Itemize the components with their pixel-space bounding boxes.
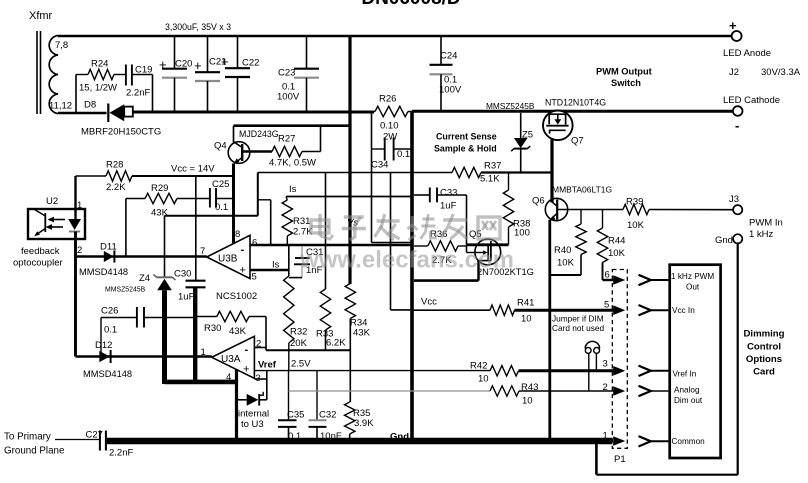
svg-text:NCS1002: NCS1002 <box>216 291 257 302</box>
svg-text:+: + <box>243 364 249 376</box>
svg-text:R28: R28 <box>106 160 123 171</box>
svg-text:C27: C27 <box>86 430 103 441</box>
svg-text:7,8: 7,8 <box>55 40 68 51</box>
svg-text:100V: 100V <box>439 85 462 96</box>
svg-text:R39: R39 <box>626 197 643 208</box>
svg-text:43K: 43K <box>353 328 371 339</box>
svg-text:C35: C35 <box>287 410 304 421</box>
svg-text:C20: C20 <box>175 59 192 70</box>
svg-text:100: 100 <box>514 228 530 239</box>
svg-text:LED Cathode: LED Cathode <box>723 95 780 106</box>
svg-text:Switch: Switch <box>611 78 641 88</box>
svg-text:MMSD4148: MMSD4148 <box>79 267 128 277</box>
svg-text:R24: R24 <box>91 59 108 70</box>
svg-text:MMSZ5245B: MMSZ5245B <box>486 101 535 111</box>
svg-text:internal: internal <box>238 409 269 420</box>
svg-text:10: 10 <box>522 396 533 407</box>
svg-text:J2: J2 <box>729 67 739 78</box>
svg-text:Vcc = 14V: Vcc = 14V <box>171 164 215 175</box>
svg-text:43K: 43K <box>151 208 169 219</box>
svg-text:R29: R29 <box>151 183 168 194</box>
svg-text:LED Anode: LED Anode <box>723 48 771 59</box>
svg-text:U2: U2 <box>46 196 58 207</box>
svg-text:Q6: Q6 <box>532 196 545 207</box>
svg-text:DN06008/D: DN06008/D <box>361 0 460 9</box>
svg-text:15, 1/2W: 15, 1/2W <box>79 83 117 94</box>
svg-text:Jumper if DIM: Jumper if DIM <box>552 314 604 324</box>
svg-text:Ground Plane: Ground Plane <box>4 446 65 457</box>
svg-text:1 kHz: 1 kHz <box>749 229 774 240</box>
svg-text:C25: C25 <box>212 179 229 190</box>
svg-text:6: 6 <box>605 270 610 281</box>
svg-text:U3B: U3B <box>218 254 238 265</box>
svg-text:Vref In: Vref In <box>673 370 697 379</box>
svg-text:-: - <box>241 244 245 256</box>
svg-text:2: 2 <box>603 382 608 393</box>
svg-text:10K: 10K <box>627 220 645 231</box>
svg-text:optocoupler: optocoupler <box>13 258 63 269</box>
svg-text:MBRF20H150CTG: MBRF20H150CTG <box>81 127 161 138</box>
svg-text:C26: C26 <box>101 306 118 317</box>
svg-text:PWM In: PWM In <box>749 218 783 229</box>
svg-text:Q7: Q7 <box>571 136 584 147</box>
svg-text:Card not used: Card not used <box>552 323 605 333</box>
svg-text:R30: R30 <box>204 323 221 334</box>
svg-text:C19: C19 <box>135 65 152 76</box>
svg-text:+: + <box>221 54 229 69</box>
svg-text:10: 10 <box>478 374 489 385</box>
svg-text:8: 8 <box>235 229 240 240</box>
svg-text:100V: 100V <box>277 92 300 103</box>
svg-text:D12: D12 <box>95 340 112 351</box>
svg-text:3: 3 <box>603 359 608 370</box>
svg-text:Current Sense: Current Sense <box>436 132 497 142</box>
svg-text:Card: Card <box>753 367 775 378</box>
svg-text:20K: 20K <box>290 338 308 349</box>
svg-text:1 kHz PWM: 1 kHz PWM <box>671 272 714 281</box>
svg-text:Dimming: Dimming <box>743 329 784 340</box>
svg-text:Analog: Analog <box>674 386 700 395</box>
svg-text:5.1K: 5.1K <box>480 174 500 185</box>
svg-text:1uF: 1uF <box>178 292 195 303</box>
svg-text:+: + <box>159 57 167 72</box>
svg-text:R32: R32 <box>290 327 307 338</box>
svg-text:+: + <box>729 18 737 33</box>
svg-text:43K: 43K <box>229 326 247 337</box>
svg-text:PWM Output: PWM Output <box>596 67 652 77</box>
svg-text:Common: Common <box>672 437 706 446</box>
svg-text:2: 2 <box>77 245 82 256</box>
svg-text:R40: R40 <box>554 245 571 256</box>
svg-text:MMSZ5245B: MMSZ5245B <box>105 287 146 294</box>
svg-text:2.2nF: 2.2nF <box>109 448 133 459</box>
svg-text:Options: Options <box>746 354 782 365</box>
svg-text:R43: R43 <box>521 382 538 393</box>
svg-text:C32: C32 <box>319 410 336 421</box>
svg-text:Vref: Vref <box>258 360 277 371</box>
svg-text:R31: R31 <box>293 216 310 227</box>
svg-text:Dim out: Dim out <box>674 396 703 405</box>
svg-text:R41: R41 <box>517 298 534 309</box>
svg-text:Vcc In: Vcc In <box>672 306 695 315</box>
svg-text:5: 5 <box>604 300 609 311</box>
svg-text:6.2K: 6.2K <box>326 337 346 348</box>
svg-text:0.1: 0.1 <box>397 149 410 160</box>
svg-text:Control: Control <box>747 342 781 353</box>
svg-text:0.1: 0.1 <box>215 202 228 213</box>
svg-text:Out: Out <box>686 283 700 292</box>
svg-text:-: - <box>245 344 249 356</box>
svg-text:C30: C30 <box>174 268 191 279</box>
svg-text:2.2nF: 2.2nF <box>126 88 150 99</box>
svg-text:MJD243G: MJD243G <box>239 129 279 139</box>
svg-text:Sample & Hold: Sample & Hold <box>434 144 497 154</box>
svg-text:Z5: Z5 <box>522 130 533 141</box>
svg-text:Q4: Q4 <box>214 141 227 152</box>
svg-text:C23: C23 <box>278 68 295 79</box>
svg-text:3,300uF, 35V x 3: 3,300uF, 35V x 3 <box>165 22 231 32</box>
svg-text:4: 4 <box>226 372 231 383</box>
svg-text:NTD12N10T4G: NTD12N10T4G <box>545 98 606 108</box>
svg-text:R42: R42 <box>470 361 487 372</box>
svg-text:6: 6 <box>252 238 257 249</box>
svg-text:1: 1 <box>77 200 82 211</box>
svg-text:MMBTA06LT1G: MMBTA06LT1G <box>552 185 612 195</box>
svg-text:D11: D11 <box>100 242 117 253</box>
svg-text:+: + <box>240 265 246 277</box>
svg-text:U3A: U3A <box>221 354 241 365</box>
svg-text:11,12: 11,12 <box>49 101 72 112</box>
svg-text:C22: C22 <box>242 58 259 69</box>
svg-text:R44: R44 <box>608 236 625 247</box>
svg-text:3.9K: 3.9K <box>354 418 374 429</box>
svg-text:2.5V: 2.5V <box>291 359 311 370</box>
svg-text:Gnd: Gnd <box>715 235 733 246</box>
svg-text:+: + <box>194 58 202 73</box>
svg-text:Z4: Z4 <box>139 273 150 284</box>
svg-text:To Primary: To Primary <box>4 432 51 443</box>
svg-text:C33: C33 <box>440 188 457 199</box>
svg-text:5: 5 <box>252 272 257 283</box>
svg-text:www.elecfans.com: www.elecfans.com <box>299 247 514 274</box>
svg-text:Gnd: Gnd <box>390 432 409 443</box>
svg-text:Vcc: Vcc <box>421 297 437 308</box>
svg-text:30V/3.3A: 30V/3.3A <box>761 67 801 78</box>
svg-text:0.1: 0.1 <box>104 325 117 336</box>
svg-text:10: 10 <box>521 314 532 325</box>
svg-text:R27: R27 <box>278 134 295 145</box>
svg-text:feedback: feedback <box>21 246 60 257</box>
svg-text:0.10: 0.10 <box>380 121 399 132</box>
svg-text:1uF: 1uF <box>440 201 457 212</box>
svg-text:R37: R37 <box>484 161 501 172</box>
svg-text:P1: P1 <box>614 454 626 465</box>
svg-text:C34: C34 <box>371 160 388 171</box>
svg-text:to U3: to U3 <box>241 419 264 430</box>
svg-text:10K: 10K <box>608 248 626 259</box>
svg-text:-: - <box>735 118 739 133</box>
svg-text:MMSD4148: MMSD4148 <box>83 369 132 379</box>
svg-text:J3: J3 <box>729 194 739 205</box>
svg-text:10K: 10K <box>557 258 575 269</box>
svg-text:1: 1 <box>603 431 608 442</box>
svg-text:4.7K, 0.5W: 4.7K, 0.5W <box>269 158 316 169</box>
svg-text:R26: R26 <box>379 94 396 105</box>
svg-text:C24: C24 <box>440 51 457 62</box>
svg-text:D8: D8 <box>84 100 96 111</box>
svg-text:Xfmr: Xfmr <box>29 10 53 22</box>
svg-text:Is: Is <box>289 184 297 195</box>
svg-text:2.2K: 2.2K <box>106 182 126 193</box>
